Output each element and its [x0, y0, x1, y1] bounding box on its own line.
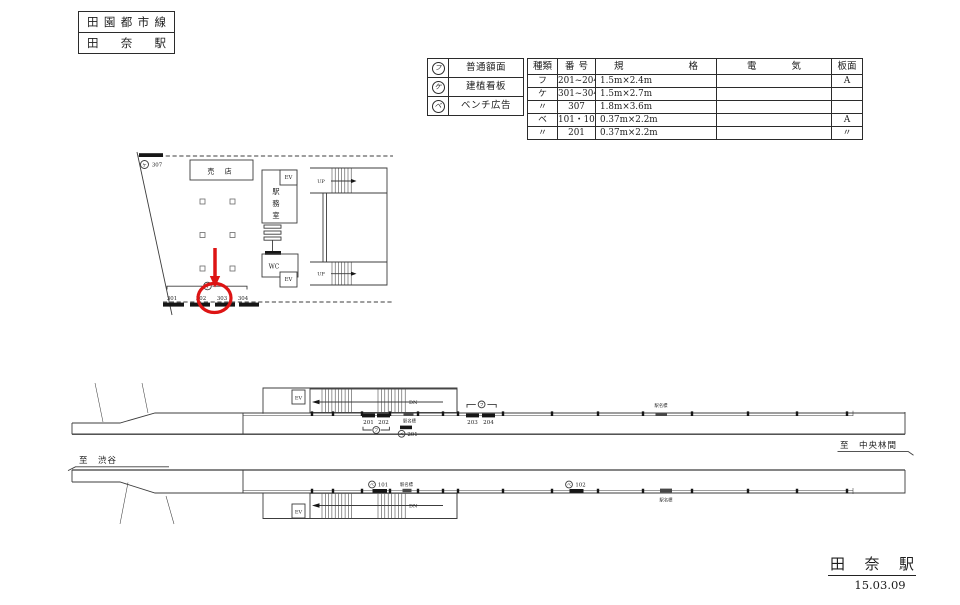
footer-date: 15.03.09 [842, 578, 918, 592]
sign-label: 駅名標 [400, 481, 414, 488]
col-header-spec: 規格 [596, 59, 717, 75]
spec-table: 種類 番号 規格 電気 板面 フ 201~204 1.5m×2.4m A ケ 3… [527, 58, 863, 140]
elevation-views: EV DN 201 202 フ 駅名標 [60, 375, 920, 550]
stairs-down: DN [310, 389, 457, 413]
cell-board: A [832, 75, 862, 88]
elevator: EV [292, 390, 305, 404]
elevator-label: EV [285, 277, 293, 283]
footer-station-name: 田奈駅 [828, 555, 916, 576]
direction-label: 至 中央林間 [840, 440, 897, 451]
stairs-up-top: UP [317, 169, 356, 193]
direction-chuo-rinkan: 至 中央林間 [838, 440, 914, 455]
ke-circled-glyph: ケ [432, 81, 445, 94]
fu-circled-glyph: フ [480, 402, 484, 407]
wc-label: WC [269, 264, 280, 271]
ke-circled-glyph: ケ [142, 161, 146, 167]
ad-number: 201 [363, 420, 374, 426]
dn-label: DN [409, 400, 418, 406]
cell-spec: 0.37m×2.2m [596, 114, 717, 127]
signboard-307-bar [139, 153, 163, 157]
elevator-bottom: EV [280, 272, 297, 287]
ad-row-301-304: 301 302 303 304 ケ [163, 282, 259, 306]
cell-type: 〃 [528, 127, 558, 139]
cell-number: 201 [558, 127, 596, 139]
office-char: 務 [272, 199, 280, 208]
cell-spec: 1.5m×2.4m [596, 75, 717, 88]
sign-label: 駅名標 [660, 497, 674, 504]
legend: フ 普通額面 ケ 建植看板 ベ ベンチ広告 [427, 58, 524, 116]
be-circled-glyph: ベ [432, 100, 445, 113]
legend-label-fu: 普通額面 [449, 59, 523, 77]
highlight-arrow-icon [210, 248, 220, 288]
cell-board [832, 88, 862, 101]
ads-201-202: 201 202 フ [362, 414, 390, 434]
dn-label: DN [409, 504, 418, 510]
legend-row-be: ベ ベンチ広告 [428, 97, 523, 115]
cell-board: A [832, 114, 862, 127]
cell-electric [717, 127, 832, 139]
cell-electric [717, 114, 832, 127]
station-name-sign-right: 駅名標 [660, 489, 674, 504]
be-circled-glyph: ベ [400, 432, 404, 437]
cell-spec: 0.37m×2.2m [596, 127, 717, 139]
bench-ad-101: ベ 101 [369, 481, 389, 493]
fu-circled-glyph: フ [374, 428, 378, 433]
col-header-type: 種類 [528, 59, 558, 75]
dn-arrow-icon [312, 400, 320, 404]
direction-label: 至 渋谷 [79, 455, 117, 466]
cell-board: 〃 [832, 127, 862, 139]
bench-ad-number: 101 [378, 483, 388, 489]
legend-row-fu: フ 普通額面 [428, 59, 523, 78]
legend-label-be: ベンチ広告 [449, 97, 523, 115]
elevator-label: EV [285, 175, 293, 181]
bench-ad-number: 201 [407, 432, 417, 438]
elevator-label: EV [295, 509, 303, 515]
up-arrow-icon [351, 272, 357, 276]
upper-elevation: EV DN 201 202 フ 駅名標 [72, 383, 914, 455]
sign-label: 駅名標 [655, 402, 669, 409]
cell-number: 301~304 [558, 88, 596, 101]
kiosk: 売 店 [190, 160, 253, 180]
station-name: 田奈駅 [79, 33, 174, 53]
col-header-number: 番号 [558, 59, 596, 75]
kiosk-label: 売 店 [207, 167, 235, 176]
ad-number: 304 [238, 296, 249, 302]
cell-number: 307 [558, 101, 596, 114]
fu-circled-glyph: フ [432, 62, 445, 75]
cell-type: ケ [528, 88, 558, 101]
sign-label: 駅名標 [403, 418, 417, 425]
overbridge-block [310, 168, 387, 285]
station-name-sign-mid: 駅名標 [403, 413, 417, 425]
ad-number: 303 [217, 296, 228, 302]
ad-number: 204 [483, 420, 494, 426]
elevator: EV [292, 504, 305, 518]
platform-profile [72, 470, 905, 524]
signboard-307-label: ケ 307 [141, 161, 163, 169]
bench-ad-number: 102 [575, 483, 585, 489]
cell-spec: 1.5m×2.7m [596, 88, 717, 101]
benches [264, 225, 281, 255]
col-header-electric: 電気 [717, 59, 832, 75]
platform-profile [72, 383, 905, 434]
line-name: 田園都市線 [79, 12, 174, 33]
up-label: UP [317, 179, 325, 185]
fu-symbol-icon: フ [428, 59, 449, 77]
stairs-down: DN [310, 493, 457, 518]
title-block: 田園都市線 田奈駅 [78, 11, 175, 54]
cell-electric [717, 75, 832, 88]
plan-view: ケ 307 売 店 駅 務 室 EV [125, 145, 395, 320]
cell-electric [717, 101, 832, 114]
ads-203-204: フ 203 204 [466, 401, 496, 426]
station-name-sign-right: 駅名標 [655, 402, 669, 416]
platform-pillars [200, 199, 235, 271]
ad-number: 203 [467, 420, 478, 426]
cell-board [832, 101, 862, 114]
legend-row-ke: ケ 建植看板 [428, 78, 523, 97]
office-char: 室 [272, 211, 279, 220]
drawing-sheet: 田園都市線 田奈駅 フ 普通額面 ケ 建植看板 ベ ベンチ広告 種類 番号 規格… [0, 0, 960, 605]
up-label: UP [317, 272, 325, 278]
bench-ad-102: ベ 102 [566, 481, 586, 493]
dn-arrow-icon [312, 503, 320, 507]
be-circled-glyph: ベ [370, 482, 374, 487]
ad-number: 202 [378, 420, 389, 426]
stairs-up-bottom: UP [317, 263, 356, 285]
cell-type: 〃 [528, 101, 558, 114]
col-header-board: 板面 [832, 59, 862, 75]
be-circled-glyph: ベ [567, 482, 571, 487]
up-arrow-icon [351, 179, 357, 183]
elevator-top: EV [280, 170, 297, 185]
sign-307-number: 307 [152, 163, 163, 169]
legend-label-ke: 建植看板 [449, 78, 523, 96]
ke-symbol-icon: ケ [428, 78, 449, 96]
cell-number: 101・102 [558, 114, 596, 127]
direction-shibuya: 至 渋谷 [68, 455, 169, 471]
cell-electric [717, 88, 832, 101]
ad-number: 301 [167, 296, 177, 302]
cell-type: ベ [528, 114, 558, 127]
elevator-label: EV [295, 395, 303, 401]
cell-spec: 1.8m×3.6m [596, 101, 717, 114]
lower-elevation: EV DN ベ 101 駅名標 [68, 455, 905, 524]
be-symbol-icon: ベ [428, 97, 449, 115]
bench-ad-201: ベ 201 [398, 426, 417, 438]
cell-number: 201~204 [558, 75, 596, 88]
office-char: 駅 [272, 187, 279, 196]
cell-type: フ [528, 75, 558, 88]
